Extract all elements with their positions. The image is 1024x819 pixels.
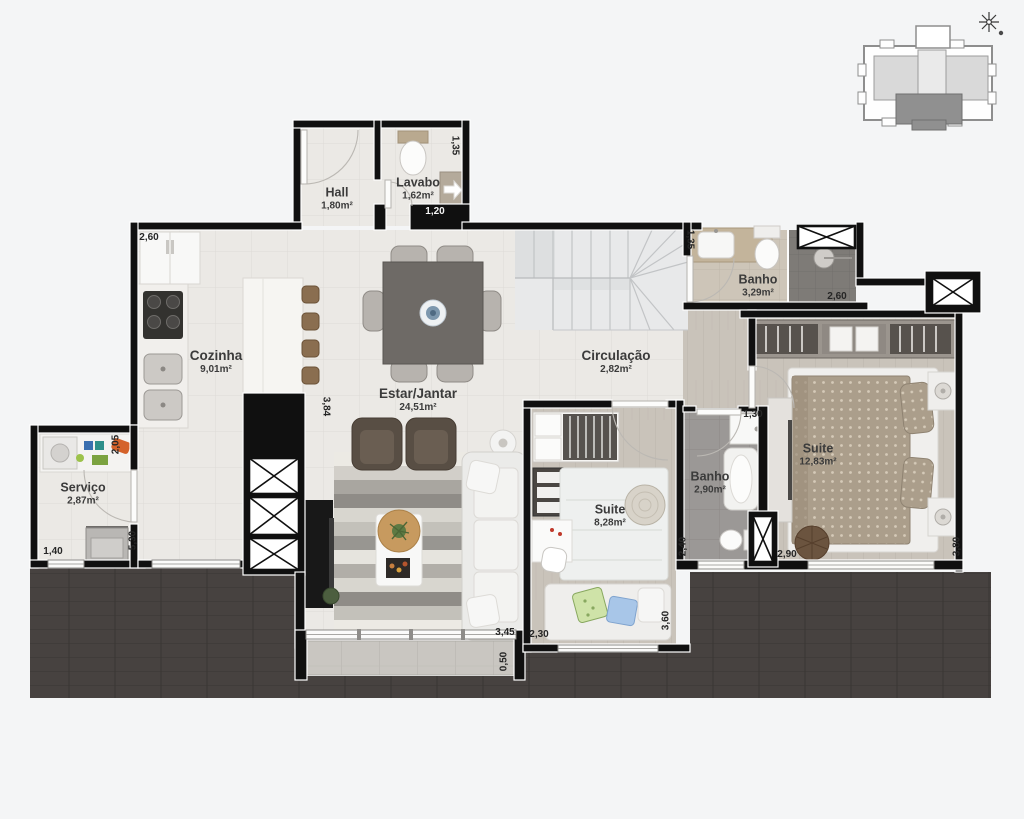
room-label-estar-jantar: Estar/Jantar 24,51m² bbox=[379, 387, 457, 413]
stool bbox=[302, 286, 319, 303]
dim-label: 1,20 bbox=[418, 206, 452, 217]
room-label-banho2: Banho 2,90m² bbox=[691, 471, 730, 496]
stool bbox=[302, 367, 319, 384]
dining-chair bbox=[363, 291, 385, 331]
dim-label: 2,40 bbox=[678, 530, 689, 564]
toilet bbox=[755, 239, 779, 269]
room-label-suite1: Suite 12,83m² bbox=[799, 443, 836, 468]
room-label-suite2: Suite 8,28m² bbox=[594, 504, 626, 529]
bath-sink bbox=[698, 232, 734, 258]
room-label-hall: Hall 1,80m² bbox=[321, 187, 353, 212]
room-label-cozinha: Cozinha 9,01m² bbox=[190, 349, 243, 375]
compass-north-icon bbox=[979, 12, 1003, 35]
pillow bbox=[606, 596, 638, 626]
room-label-banho1: Banho 3,29m² bbox=[739, 274, 778, 299]
toilet bbox=[400, 141, 426, 175]
lavabo-door bbox=[385, 180, 391, 208]
dim-label: 2,30 bbox=[522, 629, 556, 640]
stool bbox=[302, 313, 319, 330]
stairs bbox=[515, 230, 688, 330]
floor-plan-drawing bbox=[0, 0, 1024, 819]
servico-door bbox=[131, 470, 137, 522]
dim-label: 2,90 bbox=[770, 549, 804, 560]
kitchen-island bbox=[243, 278, 303, 396]
dim-label: 3,45 bbox=[488, 627, 522, 638]
dim-label: 3,80 bbox=[952, 530, 963, 564]
pillow bbox=[465, 459, 501, 495]
tv-screen bbox=[329, 518, 334, 594]
desk-chair bbox=[540, 546, 568, 574]
tv-screen bbox=[788, 420, 792, 500]
banho1-door bbox=[687, 256, 693, 302]
dim-label: 3,60 bbox=[661, 604, 672, 638]
dim-label: 1,35 bbox=[450, 129, 461, 163]
pillow bbox=[466, 594, 501, 629]
room-label-circulacao: Circulação 2,82m² bbox=[581, 349, 650, 375]
dim-label: 1,40 bbox=[36, 546, 70, 557]
plant bbox=[323, 588, 339, 604]
banho2-door bbox=[697, 409, 741, 415]
dim-label: 2,60 bbox=[132, 232, 166, 243]
suite1-door bbox=[749, 366, 755, 408]
toilet-tank bbox=[754, 226, 780, 238]
dim-label: 1,35 bbox=[685, 223, 696, 257]
entry-door bbox=[301, 130, 307, 184]
dim-label: 5,30 bbox=[128, 524, 139, 558]
building-key-plan bbox=[858, 26, 996, 130]
dining-set bbox=[363, 246, 501, 382]
dim-label: 2,05 bbox=[111, 428, 122, 462]
dim-label: 2,60 bbox=[820, 291, 854, 302]
room-label-lavabo: Lavabo 1,62m² bbox=[396, 177, 440, 202]
dim-label: 3,84 bbox=[321, 390, 332, 424]
stool bbox=[302, 340, 319, 357]
round-pillow bbox=[625, 485, 665, 525]
floor-plan-stage: Hall 1,80m² Lavabo 1,62m² Cozinha 9,01m²… bbox=[0, 0, 1024, 819]
balcony bbox=[300, 636, 522, 675]
room-label-servico: Serviço 2,87m² bbox=[60, 482, 105, 507]
toilet bbox=[720, 530, 742, 550]
dim-label: 0,50 bbox=[499, 645, 510, 679]
dim-label: 1,30 bbox=[736, 409, 770, 420]
suite2-door bbox=[612, 401, 668, 407]
